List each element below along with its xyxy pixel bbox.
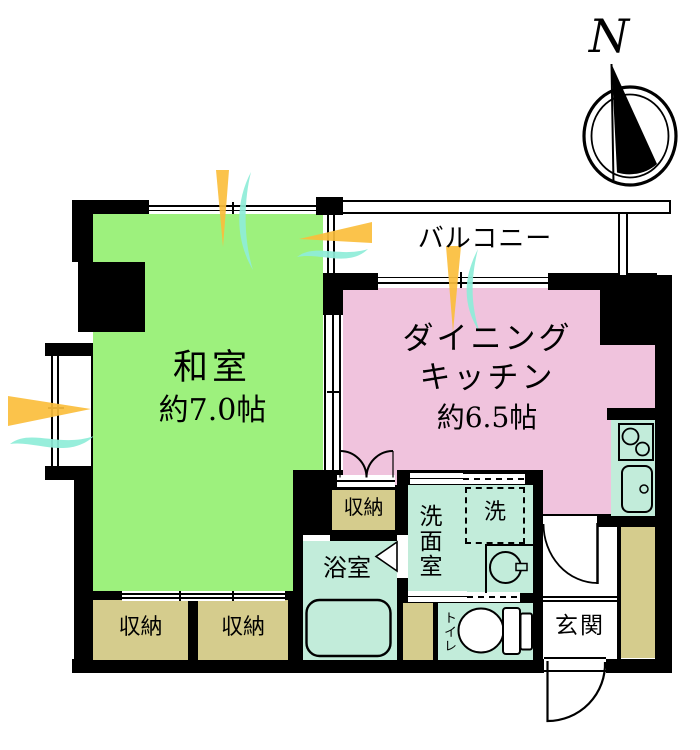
wall-pillar xyxy=(78,262,145,332)
balcony-divider xyxy=(618,214,628,275)
washbasin-counter-line xyxy=(485,544,533,546)
laundry-label: 洗 xyxy=(465,501,525,524)
hall-door-icon xyxy=(544,523,598,584)
entrance-step-line xyxy=(533,596,617,598)
dining-kitchen-size-label: 約6.5帖 xyxy=(412,403,562,432)
wall-segment xyxy=(548,275,600,290)
wall-segment xyxy=(323,273,343,315)
storage-bottom-left-label: 収納 xyxy=(93,616,188,639)
toilet-label: トイレ xyxy=(442,605,455,659)
sliding-door xyxy=(324,315,341,470)
accordion-door xyxy=(467,592,520,602)
window xyxy=(378,272,548,288)
pipe-space xyxy=(403,603,433,660)
wall-segment xyxy=(607,516,655,527)
washitsu-size-label: 約7.0帖 xyxy=(125,395,300,427)
window xyxy=(323,215,341,273)
wall-bottom xyxy=(72,659,545,673)
wall-segment xyxy=(343,275,378,290)
doorway xyxy=(543,516,597,527)
storage-bottom-right-label: 収納 xyxy=(198,616,288,639)
window xyxy=(149,202,316,214)
washitsu-room-lower xyxy=(93,480,293,592)
balcony-railing xyxy=(333,200,671,214)
bay-window-ledge xyxy=(45,466,93,480)
wall-pillar xyxy=(600,275,657,345)
sliding-door xyxy=(122,591,285,601)
bay-window-ledge xyxy=(45,343,93,356)
floor-plan: N バルコニー 和室 約7.0帖 ダイニング キッチン 約6.5帖 収納 浴室 … xyxy=(0,0,700,750)
bay-window-frame-line xyxy=(91,356,93,466)
balcony-label: バルコニー xyxy=(400,226,570,253)
wall-bottom xyxy=(605,659,672,673)
washitsu-label: 和室 xyxy=(132,350,292,387)
dining-kitchen-label-line1: ダイニング xyxy=(390,323,585,356)
wall-segment xyxy=(188,600,198,660)
sliding-door xyxy=(410,473,463,484)
entrance-label: 玄関 xyxy=(540,614,620,638)
washitsu-room xyxy=(93,213,323,480)
storage-door xyxy=(337,475,395,487)
storage-middle-label: 収納 xyxy=(330,497,397,518)
wall-right xyxy=(655,275,672,672)
compass-icon xyxy=(584,64,676,185)
north-label: N xyxy=(579,12,639,60)
wall-left-lower xyxy=(74,480,93,672)
wall-segment xyxy=(293,533,303,660)
bay-window xyxy=(45,356,91,466)
wall-segment xyxy=(288,591,293,660)
washbasin-counter-line xyxy=(485,544,487,593)
wall-segment xyxy=(316,197,343,215)
accordion-door xyxy=(463,474,525,484)
kitchen-counter xyxy=(611,420,655,516)
entrance-doorway xyxy=(544,657,606,673)
bathroom-door-frame xyxy=(397,535,408,578)
bathroom-label: 浴室 xyxy=(303,556,391,581)
entrance-step-line xyxy=(533,600,617,602)
wall-left-upper xyxy=(72,200,93,262)
washroom-label: 洗面室 xyxy=(416,489,439,594)
dining-kitchen-label-line2: キッチン xyxy=(405,362,570,395)
wall-segment xyxy=(607,408,655,420)
shoe-cabinet xyxy=(621,527,655,658)
